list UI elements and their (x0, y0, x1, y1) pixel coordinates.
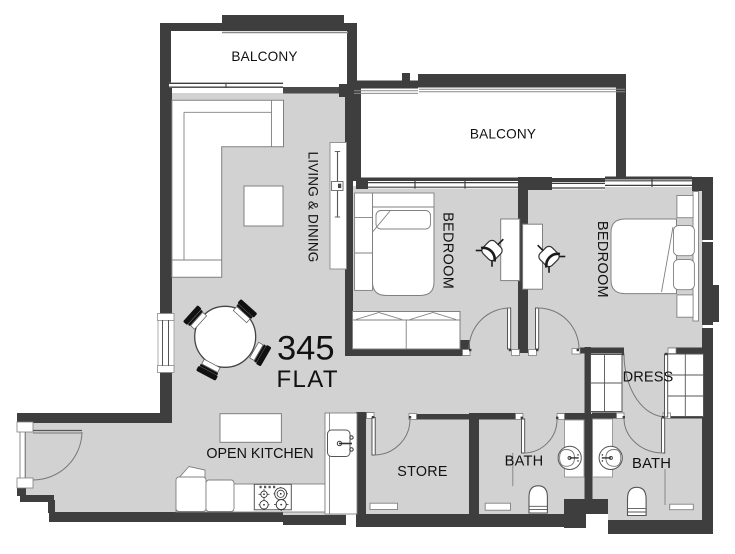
svg-text:BATH: BATH (505, 454, 544, 470)
svg-text:LIVING & DINING: LIVING & DINING (306, 151, 321, 262)
svg-text:BALCONY: BALCONY (231, 49, 297, 64)
svg-text:BEDROOM: BEDROOM (594, 221, 610, 298)
svg-text:BALCONY: BALCONY (470, 127, 536, 142)
svg-text:DRESS: DRESS (623, 370, 674, 386)
svg-text:STORE: STORE (397, 464, 448, 480)
svg-text:FLAT: FLAT (277, 366, 340, 393)
svg-text:BATH: BATH (632, 456, 671, 472)
svg-text:345: 345 (277, 330, 335, 368)
svg-text:OPEN KITCHEN: OPEN KITCHEN (206, 446, 313, 462)
svg-text:BEDROOM: BEDROOM (439, 212, 455, 289)
